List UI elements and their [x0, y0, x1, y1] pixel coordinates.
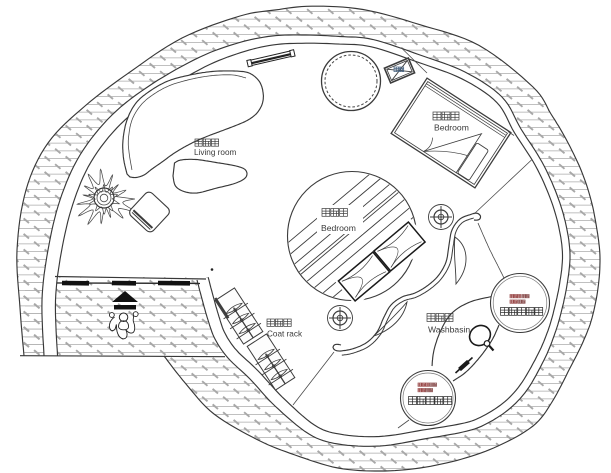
svg-text:Bedroom: Bedroom [321, 223, 356, 233]
svg-text:Bedroom: Bedroom [434, 123, 469, 133]
svg-text:Coat rack: Coat rack [267, 330, 303, 339]
svg-text:Living room: Living room [194, 148, 237, 157]
svg-text:Washbasin: Washbasin [428, 325, 470, 335]
